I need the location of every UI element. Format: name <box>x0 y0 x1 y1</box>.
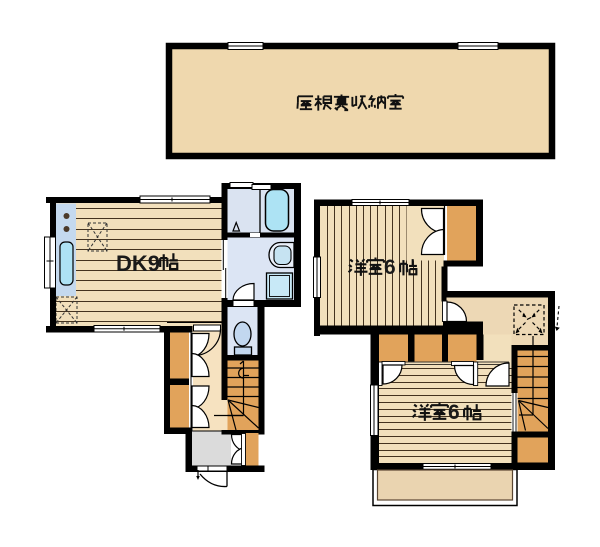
svg-text:DK9: DK9 <box>116 251 160 276</box>
svg-text:6: 6 <box>384 256 396 279</box>
svg-text:6: 6 <box>448 401 460 424</box>
